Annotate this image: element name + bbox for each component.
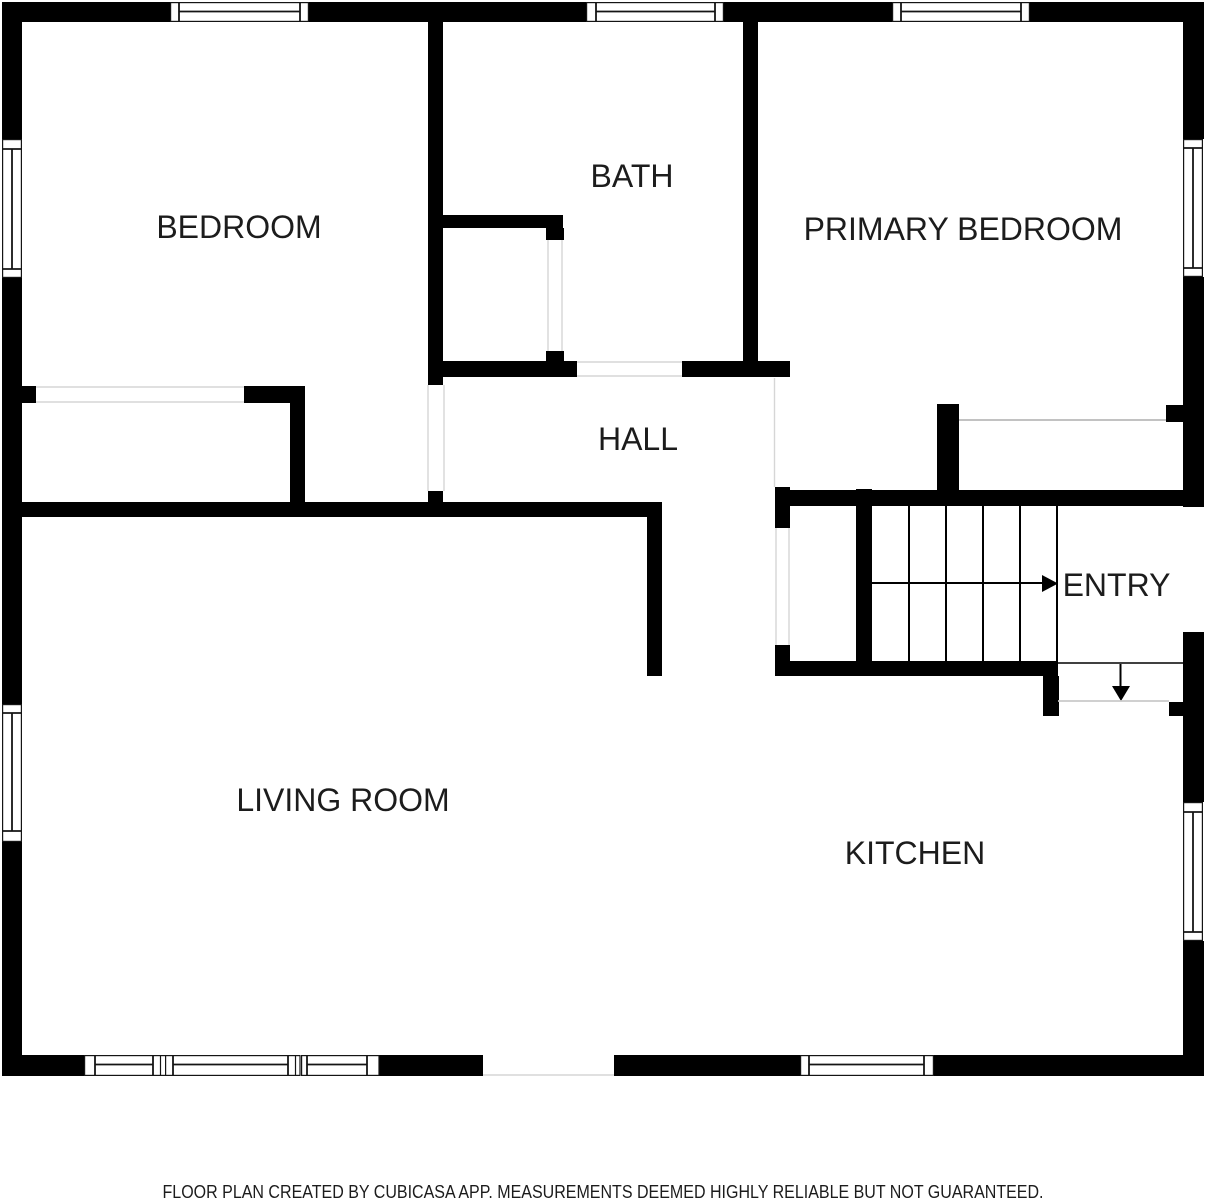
svg-text:FLOOR PLAN CREATED BY CUBICASA: FLOOR PLAN CREATED BY CUBICASA APP. MEAS… xyxy=(163,1181,1044,1200)
svg-text:LIVING ROOM: LIVING ROOM xyxy=(236,782,449,818)
svg-text:BATH: BATH xyxy=(591,158,674,194)
svg-text:PRIMARY BEDROOM: PRIMARY BEDROOM xyxy=(804,211,1123,247)
svg-text:ENTRY: ENTRY xyxy=(1063,567,1171,603)
svg-text:HALL: HALL xyxy=(598,421,678,457)
svg-text:KITCHEN: KITCHEN xyxy=(845,835,985,871)
svg-text:BEDROOM: BEDROOM xyxy=(156,209,321,245)
